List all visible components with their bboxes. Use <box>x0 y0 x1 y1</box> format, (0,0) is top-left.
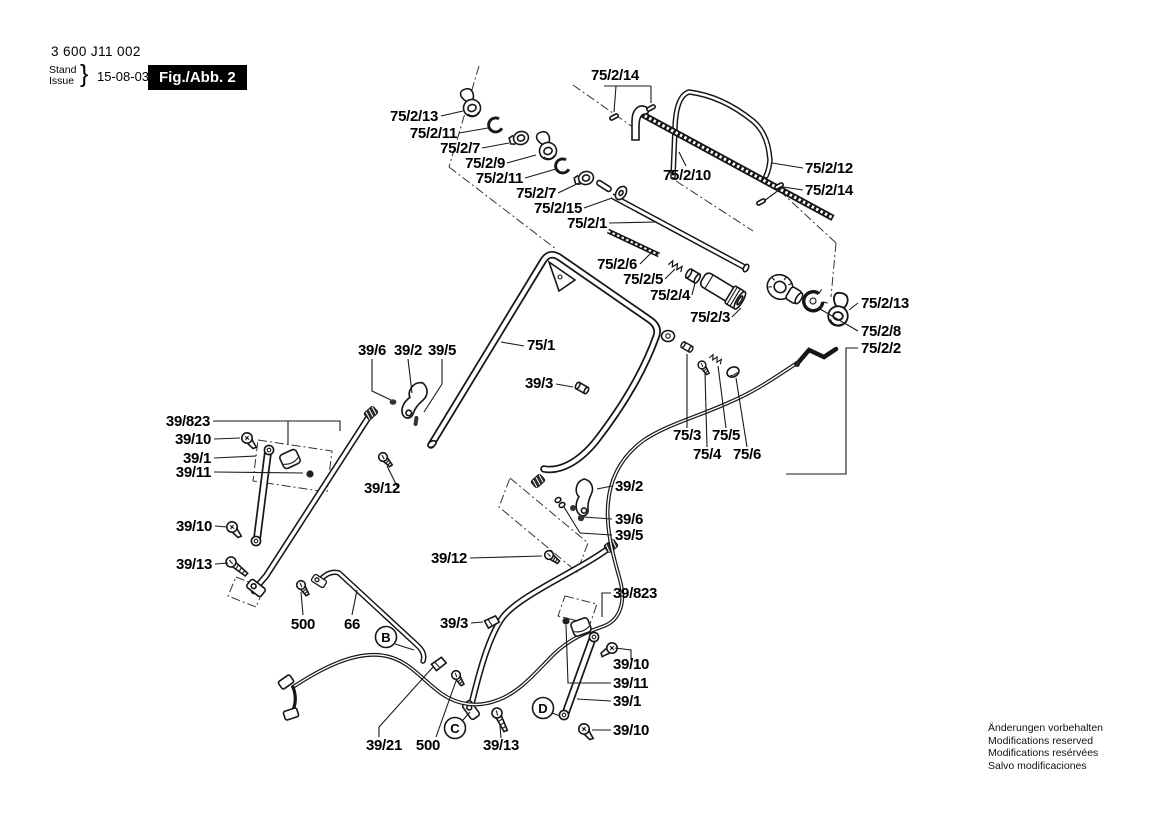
label-75-2-14: 75/2/14 <box>591 67 640 84</box>
label-66: 66 <box>344 616 360 633</box>
bolt-39-6 <box>570 505 576 511</box>
label-75-3: 75/3 <box>673 427 701 444</box>
lever-39-2 <box>574 478 593 516</box>
lever-parts-right <box>531 474 594 522</box>
pin-75-2-14 <box>609 113 619 120</box>
screw-39-13 <box>224 555 251 576</box>
cam-lever-75-2-9 <box>533 129 559 162</box>
rod-75-2-6 <box>608 231 659 255</box>
ball-stud-39-11 <box>562 617 569 624</box>
label-39-5: 39/5 <box>615 527 643 544</box>
label-39-2: 39/2 <box>394 342 422 359</box>
label-75-4: 75/4 <box>693 446 722 463</box>
balloon-d-letter: D <box>538 701 547 716</box>
label-75-2-1: 75/2/1 <box>567 215 607 232</box>
parts-diagram-page: 3 600 J11 002 Stand Issue } 15-08-03 Fig… <box>0 0 1169 826</box>
upper-bar-75-2-10 <box>636 111 833 218</box>
cable-harness-39-21 <box>278 349 836 720</box>
lever-39-2 <box>398 379 431 421</box>
screw-39-12 <box>377 451 395 467</box>
hook-piece <box>632 106 649 140</box>
handle-clamp-parts-top <box>457 86 784 206</box>
cam-lever-75-2-13 <box>827 292 852 328</box>
cam-lever-75-2-13 <box>457 86 483 119</box>
coupler-75-2-3 <box>698 270 748 311</box>
label-39-10: 39/10 <box>175 431 211 448</box>
label-39-823: 39/823 <box>166 413 210 430</box>
label-39-6: 39/6 <box>615 511 643 528</box>
clamp-band-75-2-8 <box>801 288 829 314</box>
label-75-2-2: 75/2/2 <box>861 340 901 357</box>
leader-lines <box>213 86 858 738</box>
label-75-2-10: 75/2/10 <box>663 167 711 184</box>
label-39-13: 39/13 <box>483 737 519 754</box>
label-39-10: 39/10 <box>613 656 649 673</box>
screw-500 <box>295 579 313 596</box>
label-75-5: 75/5 <box>712 427 740 444</box>
bail-handle-75-2-12 <box>673 92 770 177</box>
label-39-12: 39/12 <box>364 480 400 497</box>
nut-75-2-7 <box>508 130 530 147</box>
ferrule-39-3 <box>574 382 589 395</box>
cable-connector <box>283 708 299 721</box>
bushing-75-2-4 <box>684 268 701 284</box>
ball-stud-39-11 <box>306 470 313 477</box>
strut-eyelet <box>589 632 598 641</box>
screw-39-10 <box>225 520 246 539</box>
bolt-75-2-15 <box>596 180 612 193</box>
balloon-c-letter: C <box>450 721 460 736</box>
ratchet-coupler <box>763 270 808 310</box>
cap-39-6 <box>578 515 584 521</box>
pin-39-5 <box>413 416 418 426</box>
label-39-11: 39/11 <box>176 464 211 481</box>
clip-75-2-11 <box>554 158 569 175</box>
pin-75-2-14 <box>756 198 766 205</box>
label-75-2-13: 75/2/13 <box>390 108 438 125</box>
screw-75-4 <box>696 360 712 376</box>
strut-eyelet <box>251 536 260 545</box>
cap-75-3 <box>680 341 694 353</box>
strut-eyelet <box>559 710 568 719</box>
label-500: 500 <box>416 737 440 754</box>
label-75-2-4: 75/2/4 <box>650 287 691 304</box>
exploded-view-drawing: B C D 75/2/14 75/2/13 75/2/11 75/2/7 75/… <box>0 0 1169 826</box>
label-39-1: 39/1 <box>613 693 641 710</box>
label-500: 500 <box>291 616 315 633</box>
label-39-3: 39/3 <box>525 375 553 392</box>
label-75-2-3: 75/2/3 <box>690 309 730 326</box>
pin-75-2-14 <box>646 104 656 111</box>
label-39-13: 39/13 <box>176 556 212 573</box>
label-39-6: 39/6 <box>358 342 386 359</box>
label-75-2-13: 75/2/13 <box>861 295 909 312</box>
cable-end-fitting-75-2-2 <box>794 349 836 367</box>
label-39-10: 39/10 <box>613 722 649 739</box>
label-39-12: 39/12 <box>431 550 467 567</box>
spring-75-5 <box>709 354 722 365</box>
clip-75-2-11 <box>487 117 502 134</box>
label-39-11: 39/11 <box>613 675 648 692</box>
part-labels: 75/2/14 75/2/13 75/2/11 75/2/7 75/2/9 75… <box>166 67 909 754</box>
cable-clip <box>431 657 448 672</box>
screw-39-13 <box>489 706 513 732</box>
clamp-39-823 <box>279 448 302 469</box>
label-39-2: 39/2 <box>615 478 643 495</box>
label-39-21: 39/21 <box>366 737 402 754</box>
strut-eyelet <box>264 445 273 454</box>
label-75-6: 75/6 <box>733 446 761 463</box>
label-39-3: 39/3 <box>440 615 468 632</box>
label-39-10: 39/10 <box>176 518 212 535</box>
label-75-2-14: 75/2/14 <box>805 182 854 199</box>
label-75-1: 75/1 <box>527 337 555 354</box>
lever-parts-left <box>390 379 431 426</box>
screw-500 <box>450 669 468 686</box>
label-39-823: 39/823 <box>613 585 657 602</box>
label-75-2-5: 75/2/5 <box>623 271 663 288</box>
cap-75-6 <box>725 365 740 379</box>
label-75-2-8: 75/2/8 <box>861 323 901 340</box>
label-75-2-12: 75/2/12 <box>805 160 853 177</box>
balloon-b-letter: B <box>381 630 390 645</box>
spring-75-2-5 <box>668 260 683 272</box>
screw-39-10 <box>577 722 598 741</box>
label-39-5: 39/5 <box>428 342 456 359</box>
